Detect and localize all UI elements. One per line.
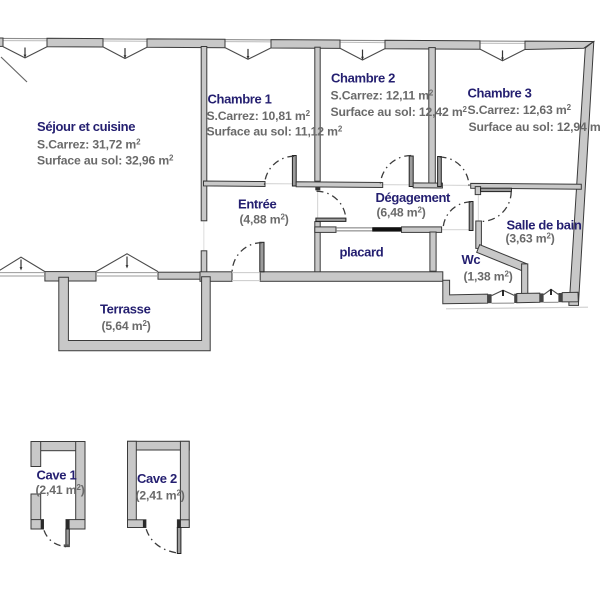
svg-text:Surface au sol: 12,94 m2: Surface au sol: 12,94 m2: [469, 120, 600, 134]
svg-text:S.Carrez: 12,63 m2: S.Carrez: 12,63 m2: [468, 103, 572, 117]
svg-text:Entrée: Entrée: [238, 197, 276, 212]
svg-text:Terrasse: Terrasse: [100, 302, 151, 317]
svg-text:Dégagement: Dégagement: [376, 190, 452, 205]
svg-text:S.Carrez: 10,81 m2: S.Carrez: 10,81 m2: [207, 109, 311, 123]
svg-text:S.Carrez: 31,72 m2: S.Carrez: 31,72 m2: [37, 138, 141, 152]
svg-text:Cave 1: Cave 1: [37, 468, 77, 483]
svg-text:Surface au sol: 32,96 m2: Surface au sol: 32,96 m2: [37, 154, 174, 168]
svg-text:Chambre 3: Chambre 3: [468, 86, 532, 101]
svg-text:Wc: Wc: [462, 252, 481, 267]
svg-text:Surface au sol: 12,42 m2: Surface au sol: 12,42 m2: [331, 105, 468, 119]
svg-text:Salle de bain: Salle de bain: [507, 218, 582, 233]
svg-text:Chambre 2: Chambre 2: [331, 71, 395, 86]
svg-text:Cave 2: Cave 2: [137, 471, 177, 486]
svg-text:placard: placard: [340, 245, 384, 260]
svg-text:S.Carrez: 12,11 m2: S.Carrez: 12,11 m2: [331, 89, 434, 103]
svg-text:Séjour et cuisine: Séjour et cuisine: [37, 119, 135, 134]
svg-text:Chambre 1: Chambre 1: [208, 92, 272, 107]
svg-text:Surface au sol: 11,12 m2: Surface au sol: 11,12 m2: [207, 125, 343, 139]
